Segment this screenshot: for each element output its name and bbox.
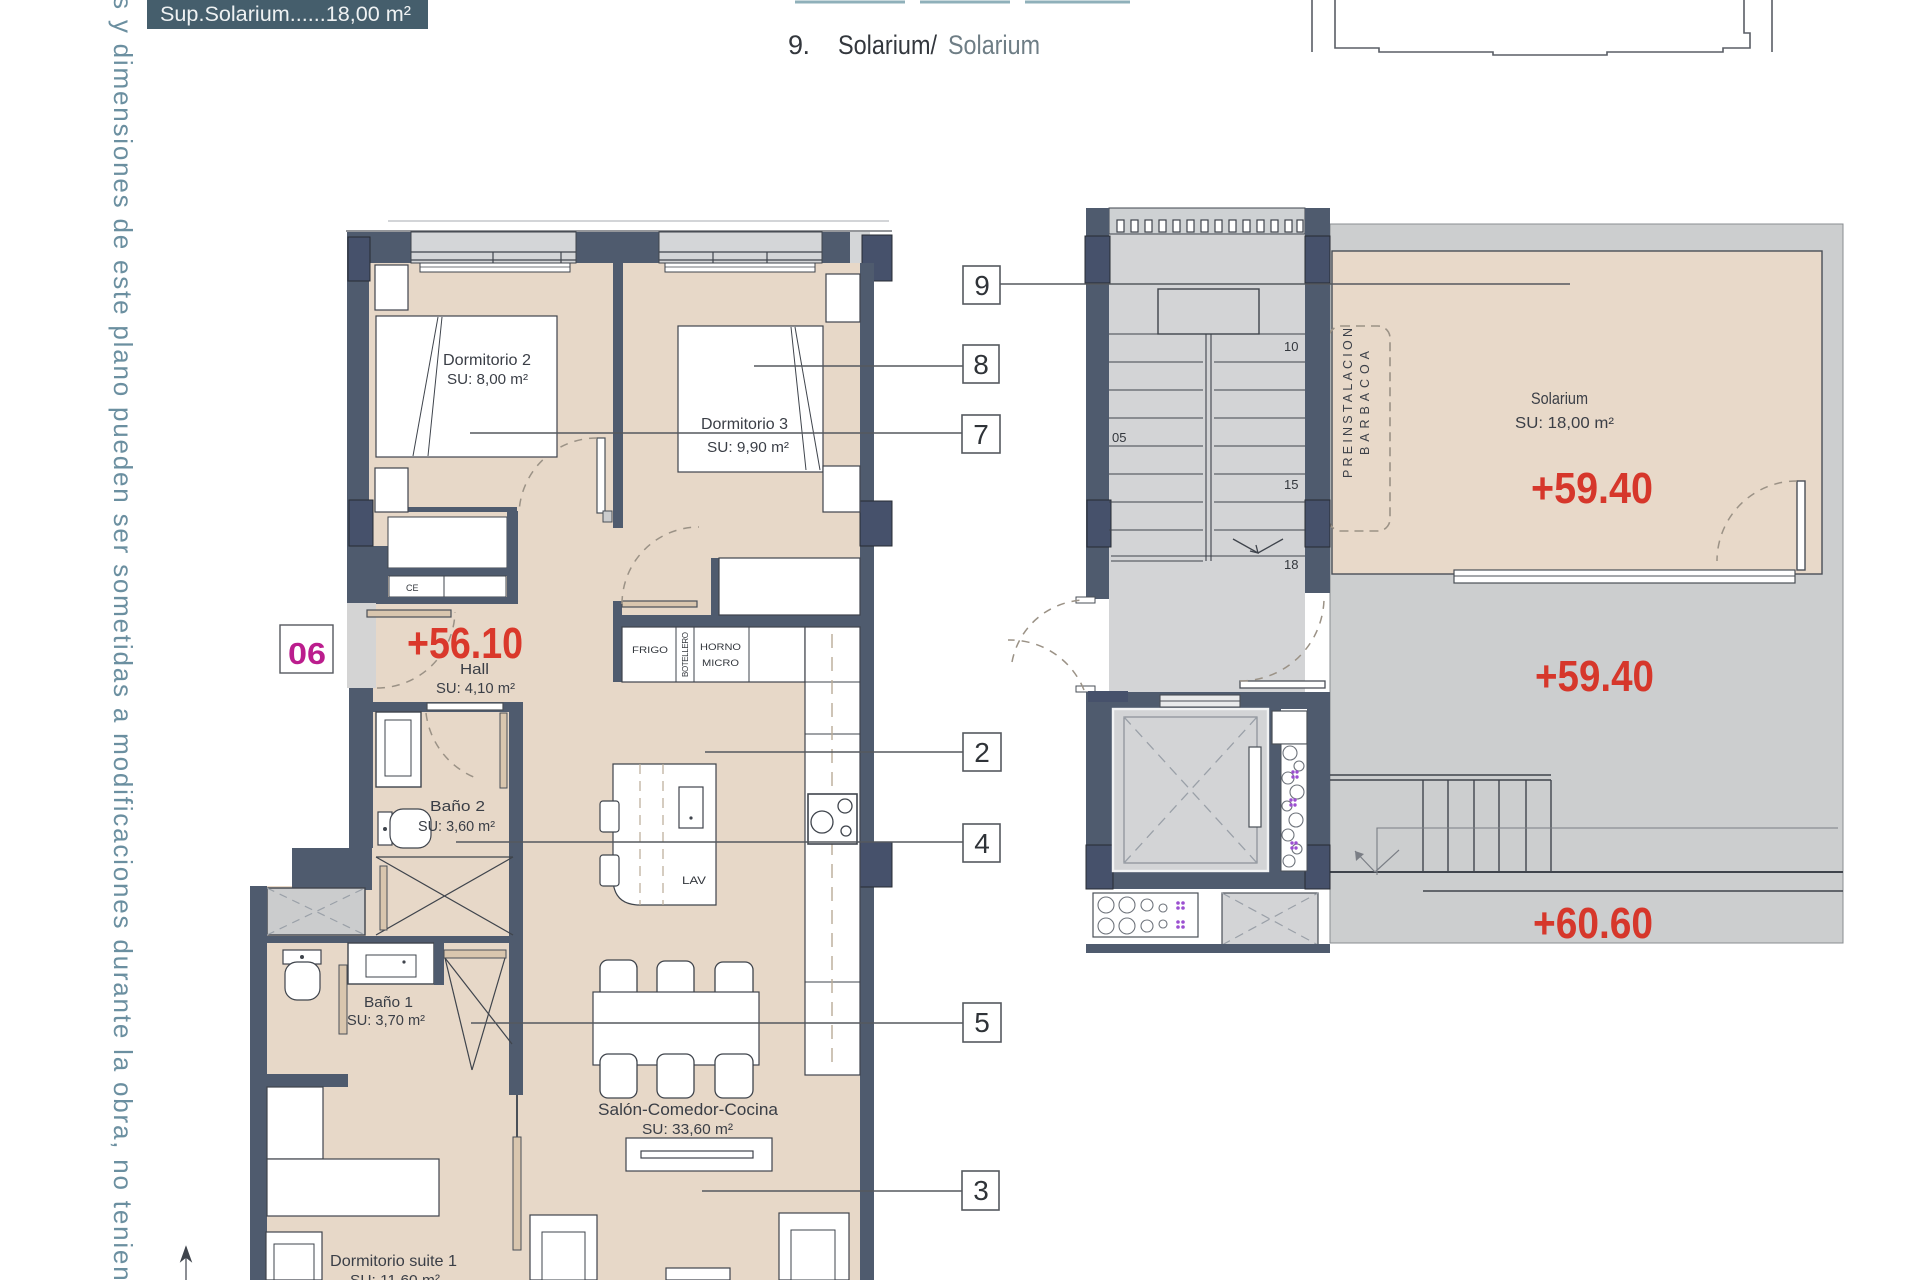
svg-text:2: 2 (974, 737, 990, 768)
svg-text:+59.40: +59.40 (1531, 464, 1653, 513)
svg-text:Dormitorio suite 1: Dormitorio suite 1 (330, 1253, 457, 1270)
svg-text:05: 05 (1112, 430, 1126, 445)
svg-text:5: 5 (974, 1007, 990, 1038)
svg-text:+60.60: +60.60 (1533, 899, 1653, 948)
svg-text:MICRO: MICRO (702, 658, 739, 668)
svg-text:CE: CE (406, 583, 419, 593)
svg-text:s y dimensiones de este plano: s y dimensiones de este plano pueden ser… (108, 0, 138, 1280)
svg-text:Salón-Comedor-Cocina: Salón-Comedor-Cocina (598, 1101, 779, 1119)
svg-text:8: 8 (973, 349, 989, 380)
svg-text:9: 9 (974, 270, 990, 301)
svg-text:9.: 9. (788, 30, 810, 60)
svg-text:Hall: Hall (460, 661, 489, 678)
svg-text:HORNO: HORNO (700, 642, 741, 652)
svg-text:7: 7 (973, 419, 989, 450)
svg-text:Solarium/: Solarium/ (838, 30, 937, 60)
svg-text:SU: 3,70 m²: SU: 3,70 m² (347, 1013, 425, 1029)
svg-text:Baño 2: Baño 2 (430, 798, 485, 815)
svg-text:06: 06 (288, 636, 326, 671)
svg-text:BOTELLERO: BOTELLERO (681, 632, 690, 677)
svg-text:Dormitorio 2: Dormitorio 2 (443, 352, 531, 369)
svg-text:SU: 8,00 m²: SU: 8,00 m² (447, 372, 528, 388)
svg-text:SU: 9,90 m²: SU: 9,90 m² (707, 440, 789, 456)
svg-text:LAV: LAV (682, 875, 707, 887)
svg-text:Solarium: Solarium (1531, 389, 1588, 408)
svg-text:3: 3 (973, 1175, 989, 1206)
svg-text:10: 10 (1284, 339, 1298, 354)
svg-text:Sup.Solarium......18,00 m²: Sup.Solarium......18,00 m² (160, 3, 411, 26)
svg-text:SU: 33,60 m²: SU: 33,60 m² (642, 1121, 733, 1138)
svg-text:4: 4 (974, 828, 990, 859)
svg-text:SU: 4,10 m²: SU: 4,10 m² (436, 681, 515, 697)
svg-text:Solarium: Solarium (948, 30, 1040, 60)
svg-text:Dormitorio 3: Dormitorio 3 (701, 416, 788, 433)
svg-text:Baño 1: Baño 1 (364, 994, 413, 1011)
svg-text:FRIGO: FRIGO (632, 645, 668, 655)
svg-text:+59.40: +59.40 (1535, 652, 1654, 701)
svg-text:SU: 3,60 m²: SU: 3,60 m² (418, 819, 495, 835)
svg-text:15: 15 (1284, 477, 1298, 492)
svg-text:SU: 11,60 m²: SU: 11,60 m² (350, 1272, 440, 1280)
svg-text:SU: 18,00 m²: SU: 18,00 m² (1515, 415, 1614, 432)
svg-text:18: 18 (1284, 557, 1298, 572)
